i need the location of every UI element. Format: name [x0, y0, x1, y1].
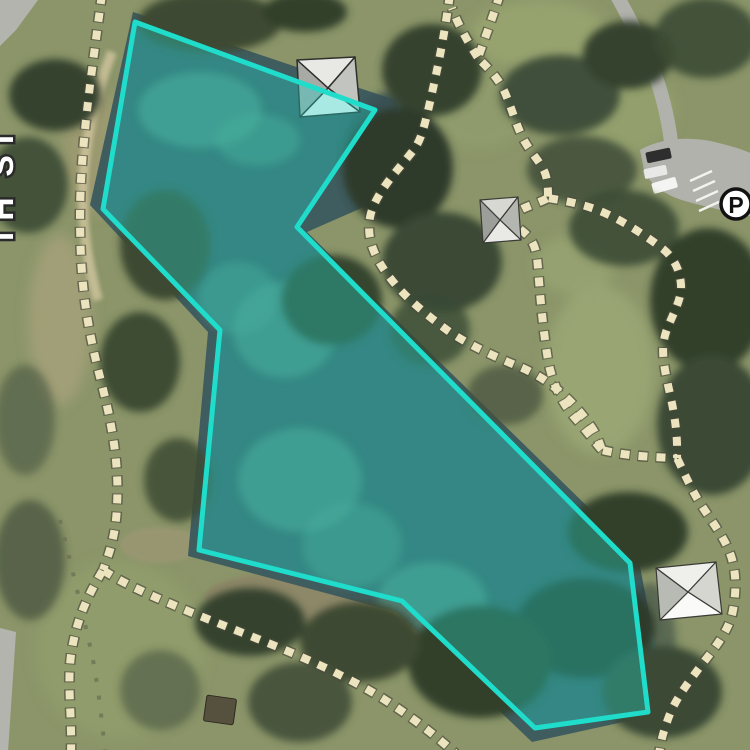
shed [203, 695, 236, 725]
parking-icon[interactable]: P [721, 189, 750, 219]
pavilion-southeast [656, 562, 722, 620]
road-name-label: TH ST [0, 124, 20, 246]
parking-icon-letter: P [728, 192, 743, 218]
aerial-map[interactable]: P TH ST [0, 0, 750, 750]
aerial-map-viewport[interactable]: P TH ST [0, 0, 750, 750]
pavilion-middle [480, 197, 521, 243]
